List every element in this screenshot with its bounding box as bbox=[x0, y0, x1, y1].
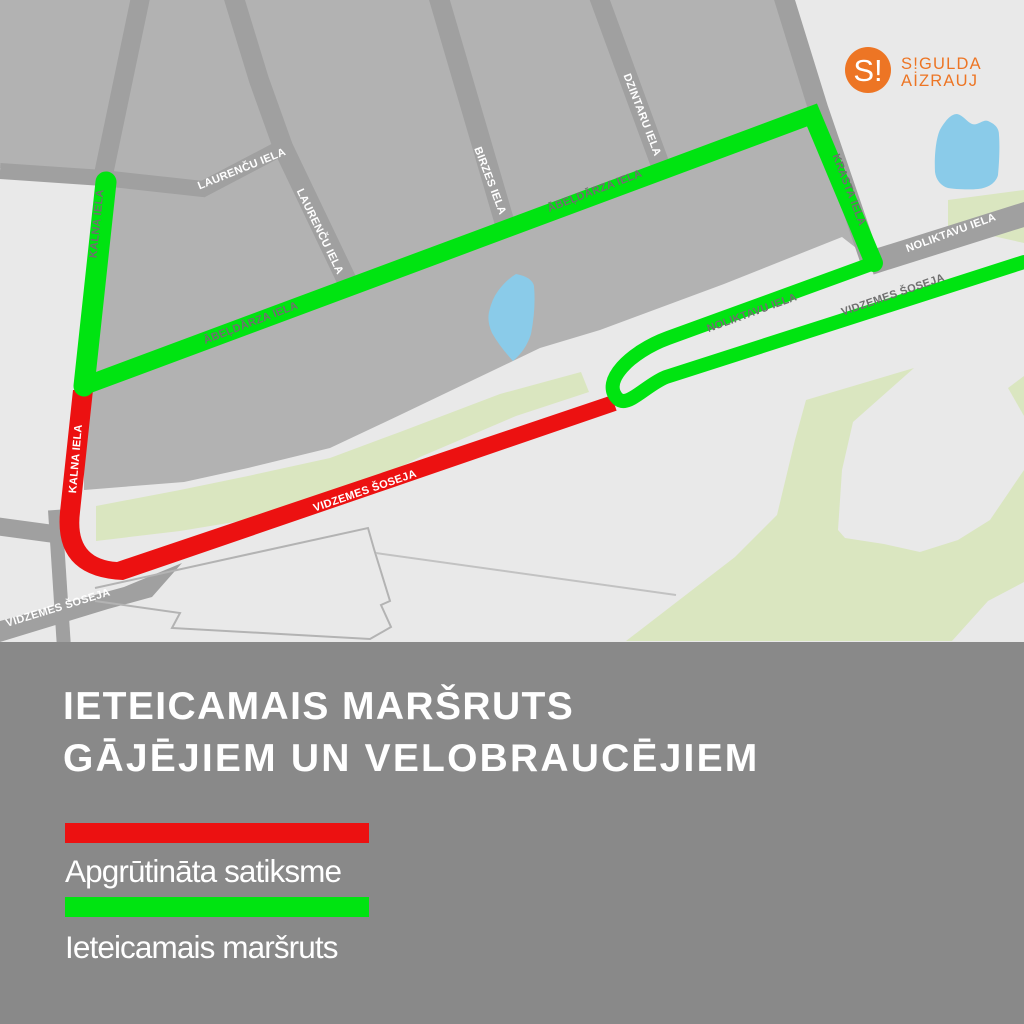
svg-text:AİZRAUJ: AİZRAUJ bbox=[901, 71, 978, 90]
svg-text:Apgrūtināta satiksme: Apgrūtināta satiksme bbox=[65, 853, 342, 889]
svg-text:GĀJĒJIEM UN VELOBRAUCĒJIEM: GĀJĒJIEM UN VELOBRAUCĒJIEM bbox=[63, 737, 759, 780]
svg-text:IETEICAMAIS MARŠRUTS: IETEICAMAIS MARŠRUTS bbox=[63, 683, 574, 728]
svg-text:Ieteicamais maršruts: Ieteicamais maršruts bbox=[65, 929, 338, 965]
svg-text:S!GULDA: S!GULDA bbox=[901, 55, 982, 73]
svg-text:S!: S! bbox=[853, 53, 882, 88]
